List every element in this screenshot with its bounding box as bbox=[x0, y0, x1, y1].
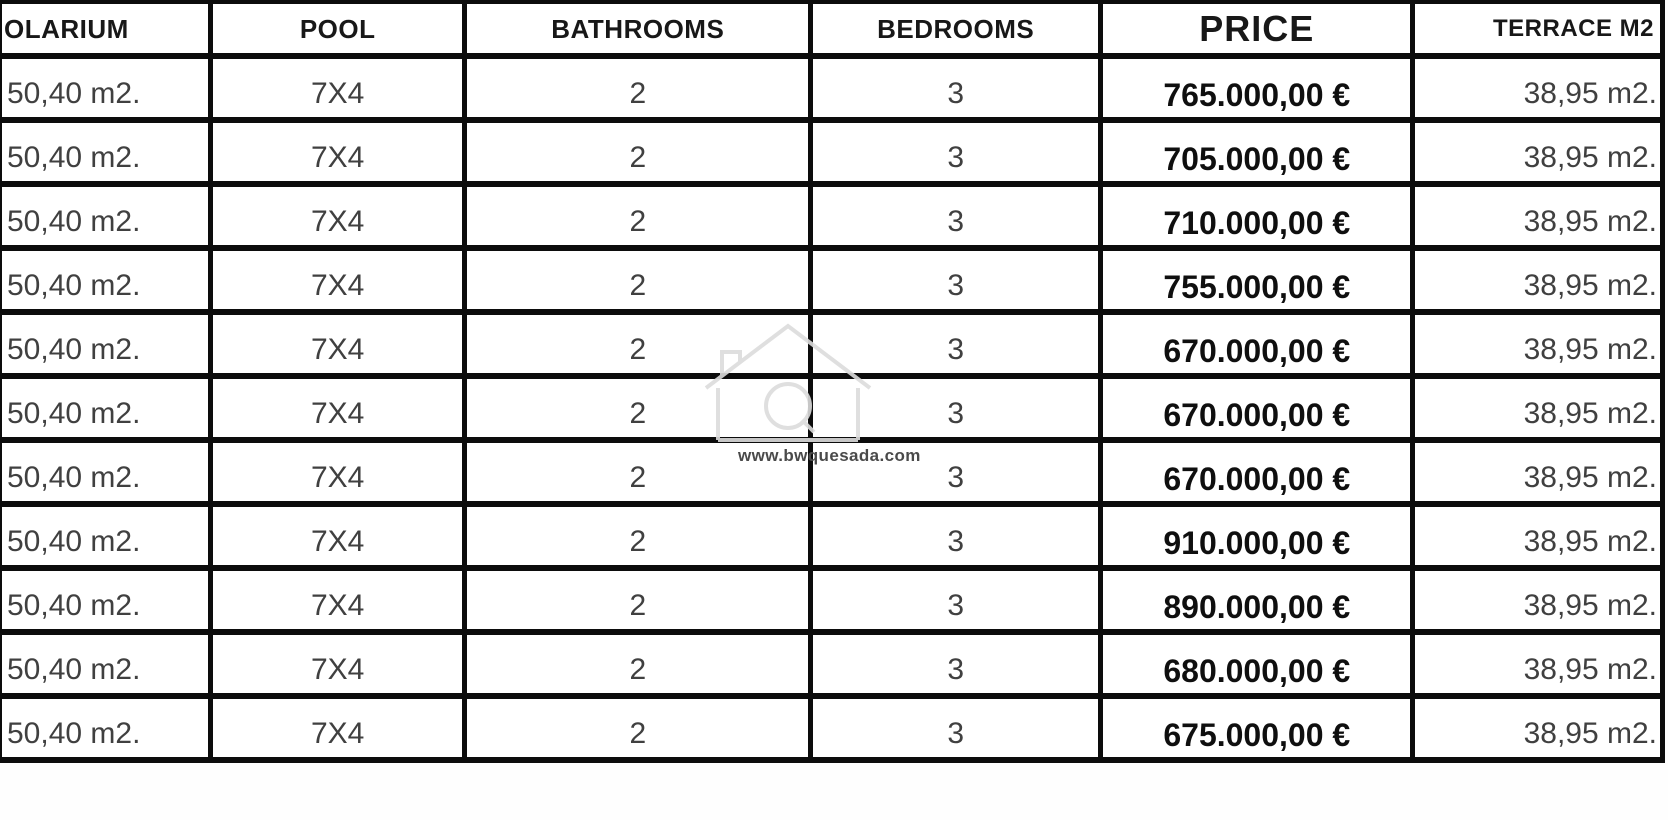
table-row: 50,40 m2.7X423670.000,00 €38,95 m2. bbox=[0, 440, 1663, 504]
cell-bedrooms: 3 bbox=[811, 632, 1101, 696]
cell-pool: 7X4 bbox=[210, 120, 465, 184]
cell-bedrooms: 3 bbox=[811, 440, 1101, 504]
header-price: PRICE bbox=[1101, 1, 1413, 56]
cell-terrace: 38,95 m2. bbox=[1413, 56, 1663, 120]
table-row: 50,40 m2.7X423755.000,00 €38,95 m2. bbox=[0, 248, 1663, 312]
cell-solarium: 50,40 m2. bbox=[0, 632, 210, 696]
cell-pool: 7X4 bbox=[210, 696, 465, 760]
table-row: 50,40 m2.7X423680.000,00 €38,95 m2. bbox=[0, 632, 1663, 696]
cell-price: 755.000,00 € bbox=[1101, 248, 1413, 312]
table-body: 50,40 m2.7X423765.000,00 €38,95 m2.50,40… bbox=[0, 56, 1663, 760]
cell-bedrooms: 3 bbox=[811, 568, 1101, 632]
cell-bathrooms: 2 bbox=[465, 120, 811, 184]
cell-bathrooms: 2 bbox=[465, 568, 811, 632]
cell-pool: 7X4 bbox=[210, 440, 465, 504]
header-bathrooms: BATHROOMS bbox=[465, 1, 811, 56]
cell-solarium: 50,40 m2. bbox=[0, 56, 210, 120]
cell-terrace: 38,95 m2. bbox=[1413, 184, 1663, 248]
cell-solarium: 50,40 m2. bbox=[0, 696, 210, 760]
cell-price: 910.000,00 € bbox=[1101, 504, 1413, 568]
cell-bathrooms: 2 bbox=[465, 312, 811, 376]
cell-pool: 7X4 bbox=[210, 56, 465, 120]
cell-price: 680.000,00 € bbox=[1101, 632, 1413, 696]
cell-solarium: 50,40 m2. bbox=[0, 504, 210, 568]
table-row: 50,40 m2.7X423890.000,00 €38,95 m2. bbox=[0, 568, 1663, 632]
cell-solarium: 50,40 m2. bbox=[0, 568, 210, 632]
header-terrace: TERRACE M2 bbox=[1413, 1, 1663, 56]
cell-terrace: 38,95 m2. bbox=[1413, 568, 1663, 632]
cell-bathrooms: 2 bbox=[465, 184, 811, 248]
cell-solarium: 50,40 m2. bbox=[0, 376, 210, 440]
property-price-table: OLARIUM POOL BATHROOMS BEDROOMS PRICE TE… bbox=[0, 0, 1665, 763]
cell-price: 675.000,00 € bbox=[1101, 696, 1413, 760]
cell-bathrooms: 2 bbox=[465, 632, 811, 696]
cell-bedrooms: 3 bbox=[811, 56, 1101, 120]
cell-price: 670.000,00 € bbox=[1101, 312, 1413, 376]
cell-bathrooms: 2 bbox=[465, 504, 811, 568]
cell-bedrooms: 3 bbox=[811, 120, 1101, 184]
cell-terrace: 38,95 m2. bbox=[1413, 504, 1663, 568]
cell-solarium: 50,40 m2. bbox=[0, 248, 210, 312]
table-row: 50,40 m2.7X423670.000,00 €38,95 m2. bbox=[0, 376, 1663, 440]
cell-bedrooms: 3 bbox=[811, 248, 1101, 312]
document-page: OLARIUM POOL BATHROOMS BEDROOMS PRICE TE… bbox=[0, 0, 1668, 820]
cell-price: 670.000,00 € bbox=[1101, 376, 1413, 440]
cell-solarium: 50,40 m2. bbox=[0, 120, 210, 184]
table-row: 50,40 m2.7X423670.000,00 €38,95 m2. bbox=[0, 312, 1663, 376]
cell-bathrooms: 2 bbox=[465, 56, 811, 120]
cell-terrace: 38,95 m2. bbox=[1413, 120, 1663, 184]
cell-bedrooms: 3 bbox=[811, 312, 1101, 376]
cell-terrace: 38,95 m2. bbox=[1413, 696, 1663, 760]
cell-terrace: 38,95 m2. bbox=[1413, 376, 1663, 440]
cell-bedrooms: 3 bbox=[811, 184, 1101, 248]
cell-pool: 7X4 bbox=[210, 184, 465, 248]
table-header-row: OLARIUM POOL BATHROOMS BEDROOMS PRICE TE… bbox=[0, 1, 1663, 56]
cell-bathrooms: 2 bbox=[465, 248, 811, 312]
cell-price: 670.000,00 € bbox=[1101, 440, 1413, 504]
cell-price: 765.000,00 € bbox=[1101, 56, 1413, 120]
cell-solarium: 50,40 m2. bbox=[0, 184, 210, 248]
cell-pool: 7X4 bbox=[210, 568, 465, 632]
cell-price: 710.000,00 € bbox=[1101, 184, 1413, 248]
cell-bedrooms: 3 bbox=[811, 376, 1101, 440]
cell-pool: 7X4 bbox=[210, 376, 465, 440]
cell-bathrooms: 2 bbox=[465, 376, 811, 440]
cell-pool: 7X4 bbox=[210, 504, 465, 568]
table-row: 50,40 m2.7X423675.000,00 €38,95 m2. bbox=[0, 696, 1663, 760]
table-row: 50,40 m2.7X423765.000,00 €38,95 m2. bbox=[0, 56, 1663, 120]
cell-pool: 7X4 bbox=[210, 312, 465, 376]
cell-terrace: 38,95 m2. bbox=[1413, 632, 1663, 696]
header-solarium: OLARIUM bbox=[0, 1, 210, 56]
table-row: 50,40 m2.7X423910.000,00 €38,95 m2. bbox=[0, 504, 1663, 568]
cell-price: 705.000,00 € bbox=[1101, 120, 1413, 184]
cell-pool: 7X4 bbox=[210, 248, 465, 312]
cell-price: 890.000,00 € bbox=[1101, 568, 1413, 632]
cell-terrace: 38,95 m2. bbox=[1413, 440, 1663, 504]
cell-bathrooms: 2 bbox=[465, 440, 811, 504]
cell-bedrooms: 3 bbox=[811, 696, 1101, 760]
cell-solarium: 50,40 m2. bbox=[0, 440, 210, 504]
cell-bedrooms: 3 bbox=[811, 504, 1101, 568]
table-row: 50,40 m2.7X423705.000,00 €38,95 m2. bbox=[0, 120, 1663, 184]
cell-terrace: 38,95 m2. bbox=[1413, 312, 1663, 376]
cell-pool: 7X4 bbox=[210, 632, 465, 696]
table-row: 50,40 m2.7X423710.000,00 €38,95 m2. bbox=[0, 184, 1663, 248]
header-bedrooms: BEDROOMS bbox=[811, 1, 1101, 56]
table-header: OLARIUM POOL BATHROOMS BEDROOMS PRICE TE… bbox=[0, 1, 1663, 56]
cell-terrace: 38,95 m2. bbox=[1413, 248, 1663, 312]
header-pool: POOL bbox=[210, 1, 465, 56]
cell-solarium: 50,40 m2. bbox=[0, 312, 210, 376]
cell-bathrooms: 2 bbox=[465, 696, 811, 760]
